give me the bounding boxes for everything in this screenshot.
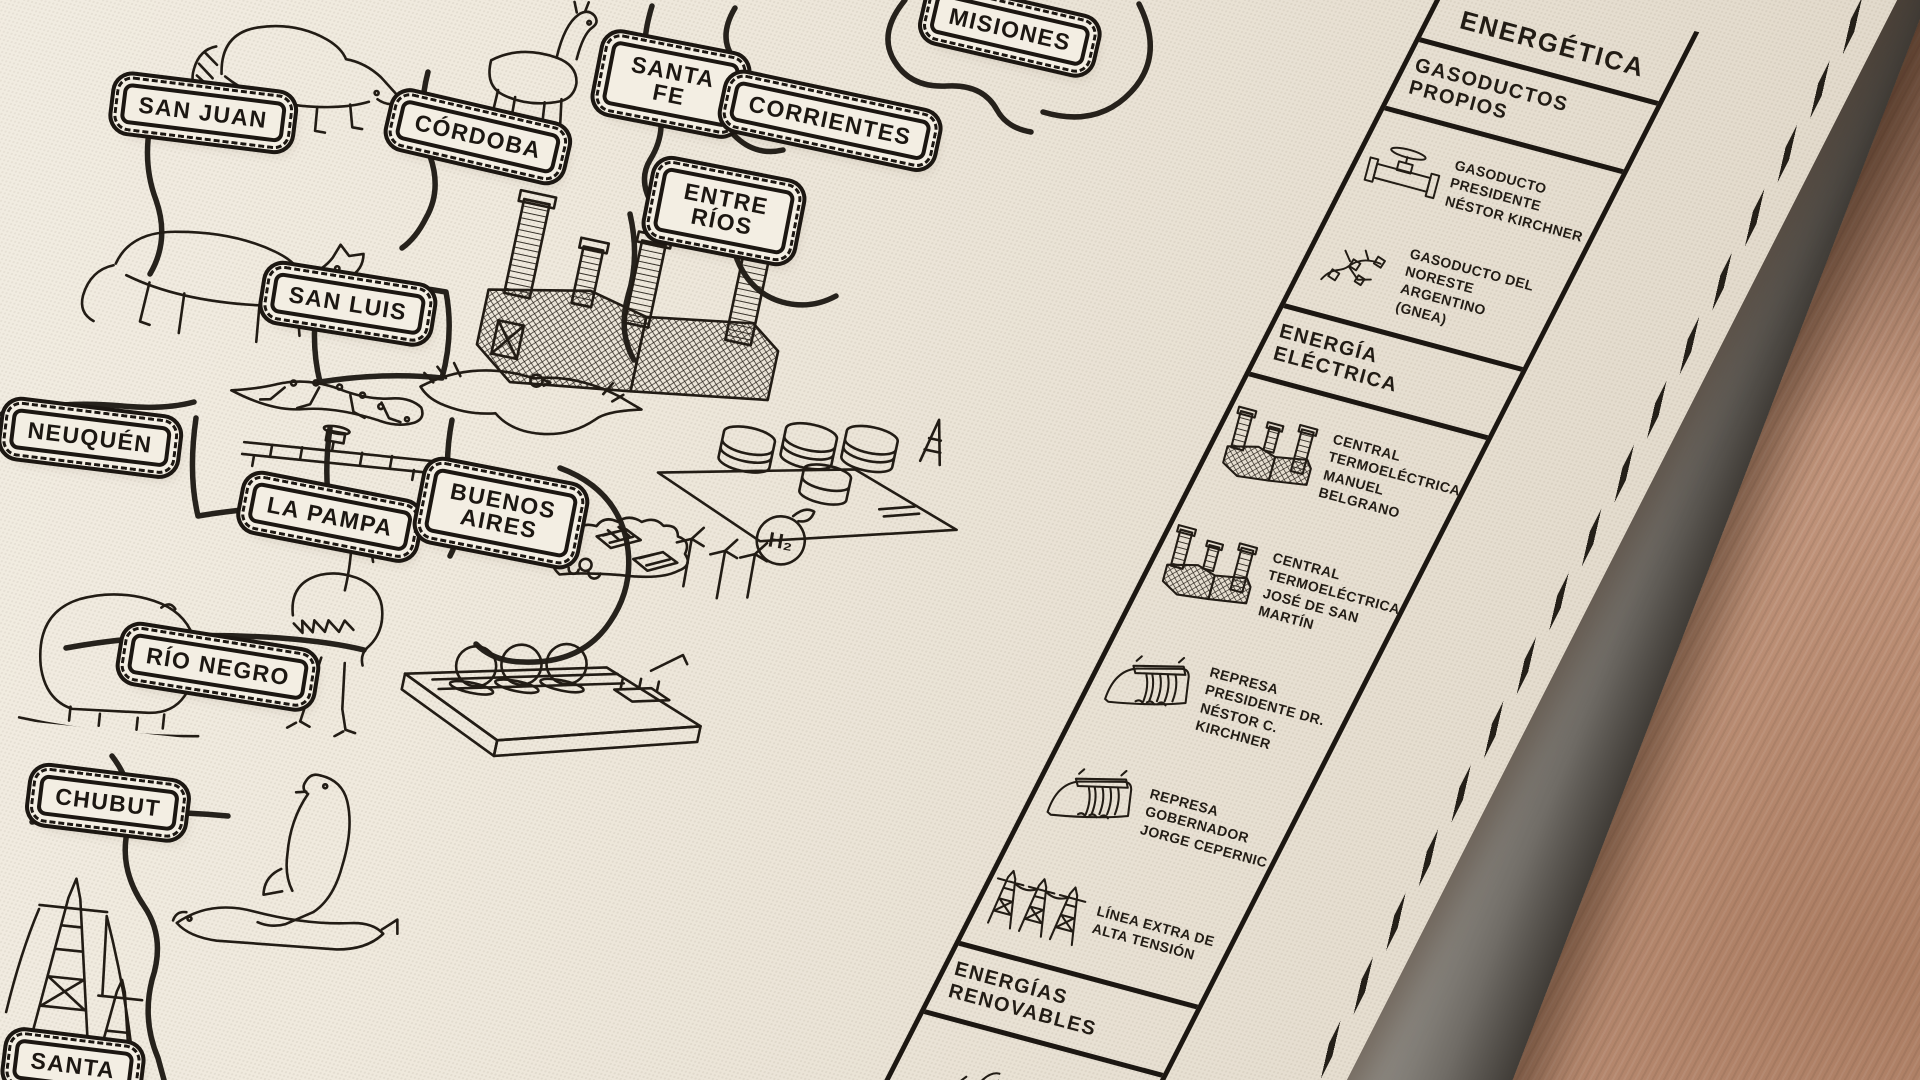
dam-icon bbox=[1095, 635, 1205, 732]
thermo-plant-icon bbox=[1214, 401, 1328, 499]
legend-item-label: LÍNEA EXTRA DE ALTA TENSIÓN bbox=[1090, 901, 1223, 969]
legend-item-label: CENTRAL TERMOELÉCTRICA JOSÉ DE SAN MARTÍ… bbox=[1257, 548, 1407, 653]
dam-icon bbox=[1038, 748, 1148, 845]
legend-item-label: CENTRAL TERMOELÉCTRICA MANUEL BELGRANO bbox=[1317, 429, 1467, 534]
legend-item-label: GASODUCTO PRESIDENTE NÉSTOR KIRCHNER bbox=[1444, 156, 1599, 246]
photo-of-energy-map-poster: H₂ SAN JUAN CÓRDOBA SANTA FE CORRIENTES … bbox=[0, 0, 1920, 1080]
province-label: SAN JUAN bbox=[137, 91, 269, 133]
gas-valve-icon bbox=[1358, 132, 1450, 208]
legend-item-label: GASODUCTO DEL NORESTE ARGENTINO (GNEA) bbox=[1394, 244, 1552, 352]
transmission-towers-icon bbox=[983, 858, 1096, 951]
legend-item-label: REPRESA GOBERNADOR JORGE CEPERNIC bbox=[1139, 784, 1281, 871]
thermo-plant-icon bbox=[1154, 519, 1268, 617]
province-label: SANTA bbox=[29, 1047, 117, 1080]
province-label: ENTRE RÍOS bbox=[682, 178, 771, 241]
province-label: BUENOS AIRES bbox=[448, 478, 558, 544]
province-label: SANTA FE bbox=[629, 51, 717, 111]
province-label: CHUBUT bbox=[54, 783, 162, 822]
wind-solar-icon bbox=[888, 1037, 1004, 1080]
legend-item-label: REPRESA PRESIDENTE DR. NÉSTOR C. KIRCHNE… bbox=[1194, 662, 1340, 766]
pipeline-network-icon bbox=[1308, 225, 1404, 308]
province-label: NEUQUÉN bbox=[26, 417, 154, 458]
